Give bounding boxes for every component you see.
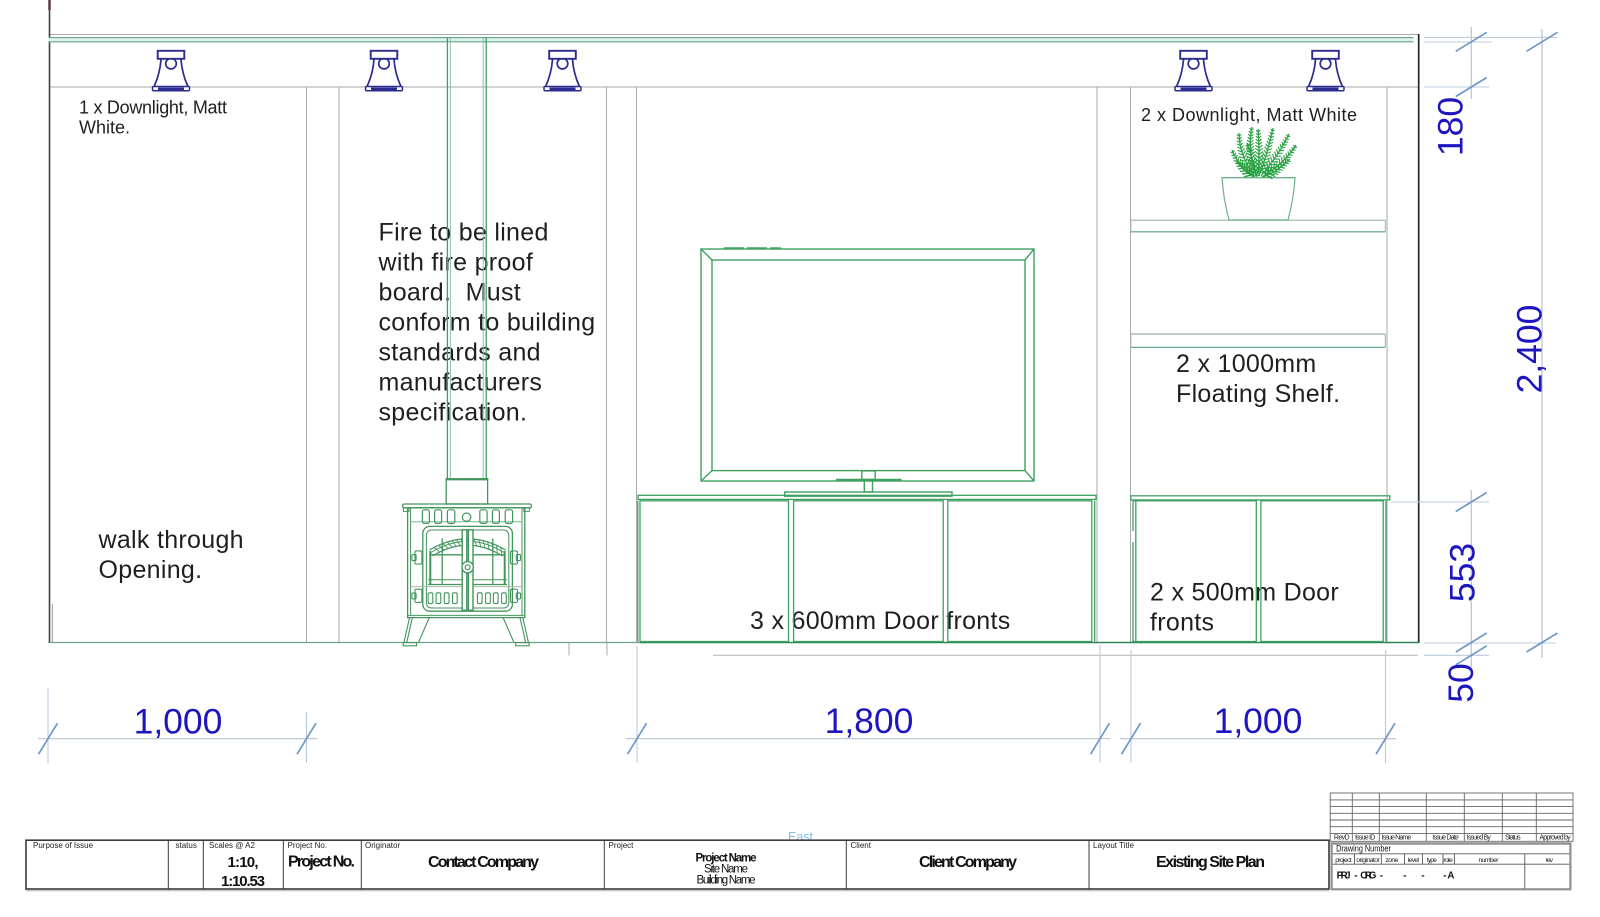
svg-text:-: - — [1443, 870, 1446, 881]
svg-text:manufacturers: manufacturers — [379, 369, 543, 397]
svg-text:Project No.: Project No. — [288, 854, 355, 871]
svg-text:1,000: 1,000 — [134, 702, 223, 742]
svg-text:Issue Date: Issue Date — [1432, 835, 1459, 842]
svg-text:-: - — [1421, 870, 1424, 881]
svg-text:-: - — [1403, 870, 1406, 881]
svg-text:Issue Name: Issue Name — [1382, 835, 1412, 842]
svg-text:project: project — [1335, 857, 1352, 864]
svg-text:type: type — [1427, 857, 1437, 864]
svg-text:1,800: 1,800 — [825, 701, 914, 741]
svg-text:2 x 500mm Door: 2 x 500mm Door — [1150, 579, 1339, 607]
svg-text:standards and: standards and — [379, 339, 541, 367]
svg-text:originator: originator — [1356, 857, 1380, 864]
svg-text:1 x Downlight, Matt: 1 x Downlight, Matt — [79, 98, 227, 118]
svg-text:with fire proof: with fire proof — [378, 249, 534, 277]
svg-text:-: - — [1380, 870, 1383, 881]
svg-text:level: level — [1408, 857, 1420, 864]
svg-text:rev: rev — [1546, 857, 1554, 864]
svg-text:A: A — [1447, 870, 1454, 881]
svg-text:Originator: Originator — [365, 841, 400, 850]
svg-text:ORG: ORG — [1360, 870, 1377, 881]
svg-text:2 x 1000mm: 2 x 1000mm — [1176, 350, 1317, 378]
svg-text:Client: Client — [851, 841, 872, 850]
svg-text:board. Must: board. Must — [379, 279, 522, 307]
svg-text:1,000: 1,000 — [1214, 701, 1303, 741]
svg-text:2 x Downlight, Matt White: 2 x Downlight, Matt White — [1141, 105, 1357, 125]
svg-text:PRJ: PRJ — [1337, 870, 1351, 881]
svg-text:role: role — [1443, 857, 1453, 864]
svg-text:fronts: fronts — [1150, 609, 1214, 637]
svg-text:status: status — [176, 841, 197, 850]
svg-text:zone: zone — [1385, 857, 1398, 864]
svg-text:Layout Title: Layout Title — [1093, 841, 1134, 850]
svg-text:553: 553 — [1443, 543, 1483, 602]
svg-text:180: 180 — [1431, 97, 1471, 156]
svg-text:number: number — [1479, 857, 1500, 864]
svg-text:Building Name: Building Name — [697, 875, 756, 887]
svg-text:Project No.: Project No. — [288, 841, 328, 850]
svg-text:Client Company: Client Company — [919, 854, 1017, 871]
svg-text:Approved by: Approved by — [1539, 835, 1571, 842]
svg-text:Status: Status — [1505, 835, 1521, 842]
svg-text:specification.: specification. — [379, 399, 528, 427]
svg-text:White.: White. — [79, 117, 130, 137]
svg-text:walk through: walk through — [98, 526, 244, 554]
svg-text:Floating Shelf.: Floating Shelf. — [1176, 380, 1340, 408]
svg-text:Project: Project — [609, 841, 635, 850]
svg-text:RevD: RevD — [1334, 835, 1350, 842]
svg-text:Purpose of Issue: Purpose of Issue — [33, 841, 94, 850]
svg-text:Drawing Number: Drawing Number — [1336, 844, 1391, 854]
svg-text:1:10.53: 1:10.53 — [221, 873, 265, 890]
svg-text:Issue ID: Issue ID — [1355, 835, 1375, 842]
svg-text:conform to building: conform to building — [379, 309, 596, 337]
svg-text:Contact Company: Contact Company — [428, 854, 539, 871]
svg-text:Opening.: Opening. — [99, 556, 203, 584]
svg-text:Scales @ A2: Scales @ A2 — [209, 841, 255, 850]
svg-text:2,400: 2,400 — [1510, 305, 1550, 394]
svg-text:50: 50 — [1441, 663, 1481, 703]
svg-text:Fire to be lined: Fire to be lined — [379, 219, 549, 247]
svg-text:Existing Site Plan: Existing Site Plan — [1156, 854, 1265, 871]
svg-text:-: - — [1354, 870, 1357, 881]
svg-text:1:10,: 1:10, — [228, 854, 259, 871]
svg-text:Issued By: Issued By — [1467, 835, 1492, 842]
